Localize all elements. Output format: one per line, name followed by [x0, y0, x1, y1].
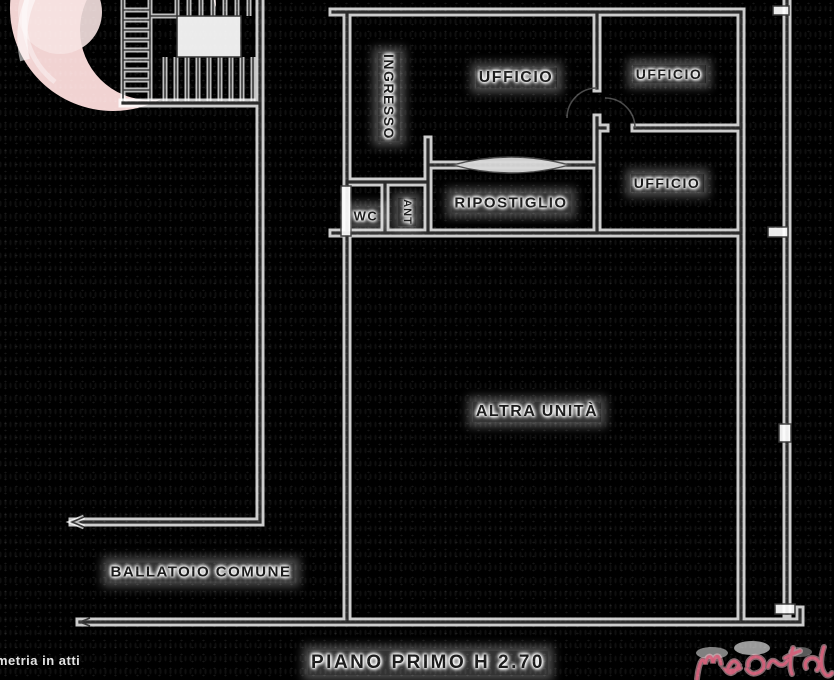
window-markers: [341, 6, 795, 614]
watermark-text: metria in atti: [0, 653, 80, 668]
sliding-door-symbol: [453, 157, 569, 173]
floor-plan-walls: [73, 0, 800, 622]
pink-script-logo: [696, 641, 832, 679]
common-area-label: BALLATOIO COMUNE: [108, 563, 295, 582]
room-label-wc: WC: [351, 208, 382, 225]
room-label-ufficio-bottom-right: UFFICIO: [631, 174, 704, 192]
room-label-altra-unita: ALTRA UNITÀ: [473, 402, 601, 422]
room-label-ufficio-center: UFFICIO: [476, 68, 557, 88]
room-label-anti: ANT: [398, 198, 416, 226]
room-label-ingresso: INGRESSO: [378, 53, 400, 141]
floor-caption: PIANO PRIMO H 2.70: [308, 651, 548, 675]
room-label-ripostiglio: RIPOSTIGLIO: [451, 194, 570, 213]
room-label-ufficio-top-right: UFFICIO: [633, 65, 706, 83]
stairwell-void: [177, 16, 241, 57]
line-end-ticks: [72, 517, 90, 626]
floor-plan-canvas: INGRESSO UFFICIO UFFICIO UFFICIO RIPOSTI…: [0, 0, 834, 680]
